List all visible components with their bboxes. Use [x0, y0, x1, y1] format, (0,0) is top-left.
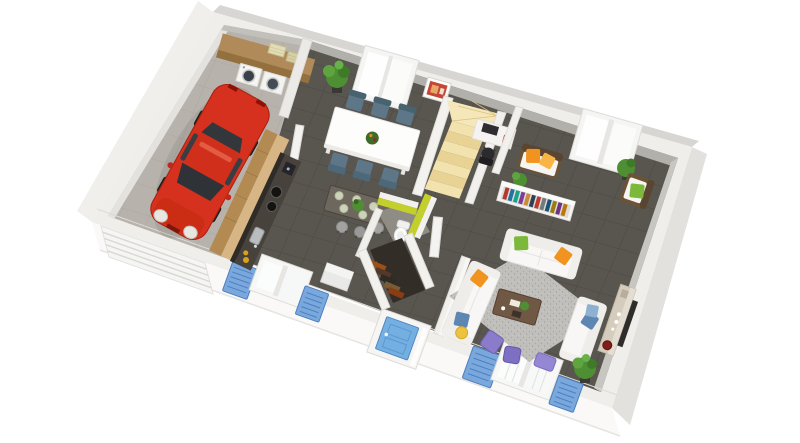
- stool-wheel: [355, 236, 357, 238]
- green-pillow: [514, 236, 529, 251]
- plant-foliage: [582, 354, 590, 362]
- green-pillow: [629, 183, 645, 199]
- stool-wheel: [337, 231, 339, 233]
- plant-foliage: [323, 65, 335, 77]
- plant-foliage: [573, 358, 584, 369]
- light-blue-pillow: [585, 304, 599, 318]
- plant-foliage: [512, 172, 520, 180]
- orange-pillow: [526, 149, 540, 163]
- floorplan-svg: [0, 0, 800, 443]
- stool-wheel: [345, 231, 347, 233]
- bar-stool: [337, 222, 348, 234]
- stool-wheel: [381, 232, 383, 234]
- purple-cushion: [503, 346, 522, 365]
- plant-foliage: [335, 61, 344, 70]
- floor-cushion: [503, 346, 522, 365]
- gold-jar: [243, 257, 249, 263]
- plant-foliage: [627, 159, 636, 168]
- floorplan-render: [0, 0, 800, 443]
